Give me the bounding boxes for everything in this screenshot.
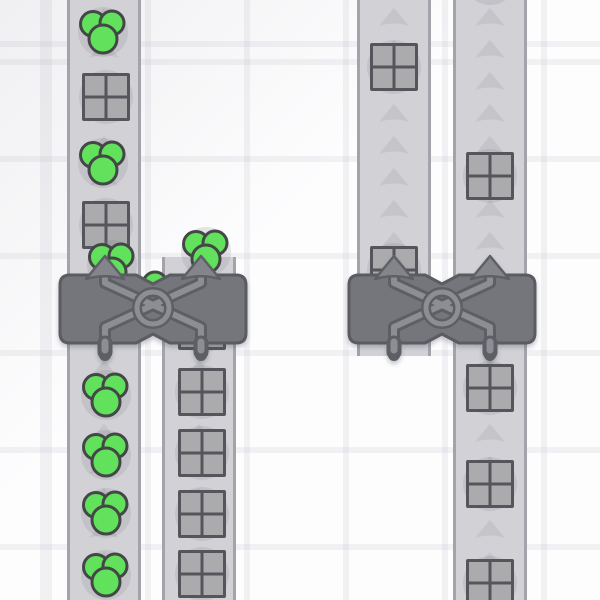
item-circle-shape[interactable] [81,430,131,480]
item-square-shape[interactable] [463,361,517,415]
item-square-shape[interactable] [463,149,517,203]
factory-floor[interactable] [0,0,600,600]
item-square-shape[interactable] [79,70,133,124]
item-circle-shape[interactable] [81,550,131,600]
item-circle-shape[interactable] [81,488,131,538]
item-circle-shape[interactable] [81,370,131,420]
item-circle-shape[interactable] [78,7,128,57]
item-square-shape[interactable] [175,426,229,480]
item-square-shape[interactable] [175,547,229,600]
game-world-viewport[interactable] [0,0,600,600]
item-square-shape[interactable] [175,487,229,541]
item-square-shape[interactable] [463,556,517,600]
item-square-shape[interactable] [463,457,517,511]
item-square-shape[interactable] [175,365,229,419]
item-square-shape[interactable] [367,40,421,94]
item-circle-shape[interactable] [78,138,128,188]
